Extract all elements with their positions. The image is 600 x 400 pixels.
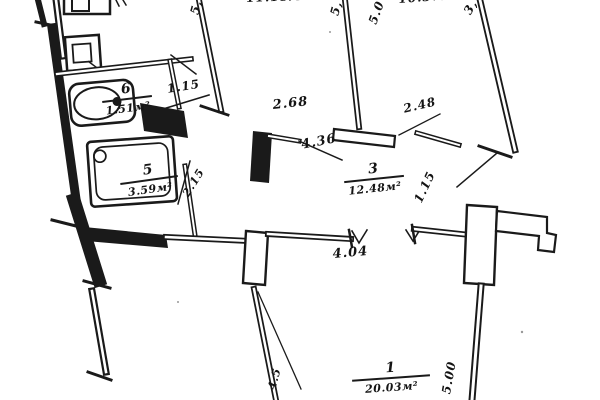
floor-plan-drawing (0, 0, 600, 400)
room-label-3: 3 12.48м² (342, 159, 405, 198)
stove-icon (64, 0, 110, 14)
room4-walls (399, 0, 515, 187)
room-label-6: 6 1.51м² (100, 79, 154, 118)
dim-hall-opening: 4.04 (332, 244, 369, 262)
corridor-wall (84, 205, 556, 285)
floor-plan-scan: 6 1.51м² 5 3.59м² 3 12.48м² 1 20.03м² 11… (0, 0, 600, 400)
room-label-1: 1 20.03м² (351, 358, 431, 396)
clipped-top-marks (116, 0, 126, 6)
room2-walls (171, 0, 395, 183)
sink-icon (65, 35, 101, 71)
